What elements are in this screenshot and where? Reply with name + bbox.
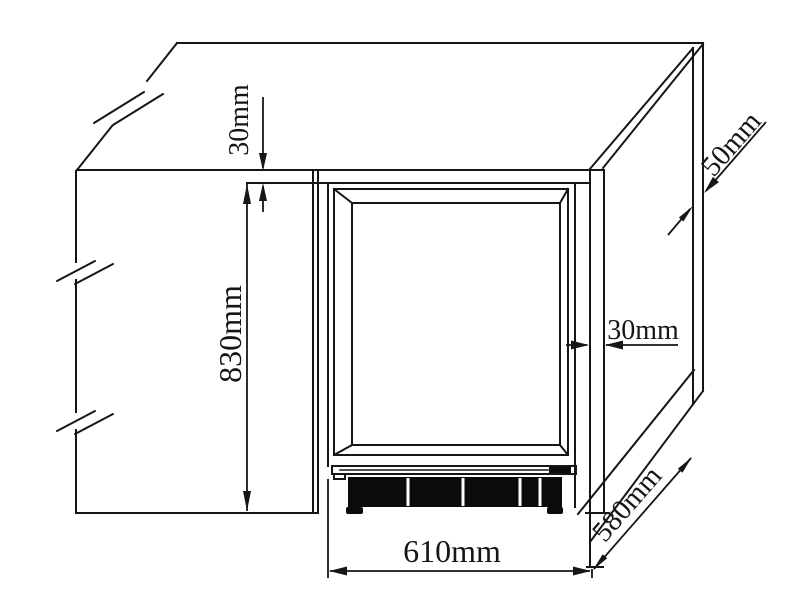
appliance-door [247, 183, 588, 507]
break-stroke [94, 92, 144, 123]
break-stroke [57, 411, 95, 431]
installation-diagram-page: 30mm 830mm 50mm 30mm [0, 0, 800, 600]
arrowhead-up [259, 183, 267, 201]
arrowhead-up-right [678, 457, 692, 473]
dim-depth-label: 580mm [586, 460, 669, 548]
break-lines [57, 92, 163, 434]
dim-top-gap-label: 30mm [224, 84, 255, 156]
installation-diagram: 30mm 830mm 50mm 30mm [0, 0, 800, 600]
arrowhead-down [243, 491, 251, 511]
cabinet-top-left-edge [77, 43, 177, 170]
break-stroke [57, 261, 95, 281]
arrowhead-left [329, 567, 347, 576]
vent-grille-panel [348, 477, 562, 507]
arrowhead-right [571, 341, 589, 350]
dim-rear-gap-label: 50mm [695, 105, 768, 182]
door-frame-outer [334, 189, 568, 455]
side-panel-back-edges [693, 44, 703, 403]
right-foot [547, 507, 563, 514]
arrowhead-down [259, 153, 267, 171]
feet [346, 507, 563, 514]
door-frame-miters [334, 189, 568, 455]
break-stroke [75, 414, 113, 434]
dim-height: 830mm [212, 184, 251, 511]
side-panel-top-edges [589, 44, 703, 170]
dim-rear-gap: 50mm [668, 105, 768, 235]
arrowhead-up-right [679, 206, 693, 222]
dim-side-gap: 30mm [566, 315, 679, 350]
dim-width-label: 610mm [403, 533, 501, 569]
dim-depth: 580mm [586, 457, 692, 570]
dim-height-label: 830mm [212, 285, 248, 383]
niche-left-wall-edge [313, 170, 318, 513]
dim-side-gap-label: 30mm [607, 315, 679, 346]
break-stroke [113, 94, 163, 125]
break-stroke [75, 264, 113, 284]
door-glass-panel [352, 203, 560, 445]
left-foot [346, 507, 363, 514]
arrowhead-up [243, 184, 251, 204]
door-badge [549, 467, 571, 473]
